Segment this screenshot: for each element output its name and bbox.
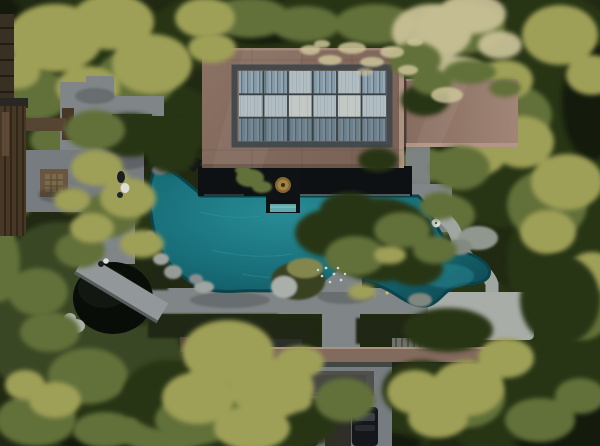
aerial-photo-canvas bbox=[0, 0, 600, 446]
aerial-photo bbox=[0, 0, 600, 446]
vignette bbox=[0, 0, 600, 446]
